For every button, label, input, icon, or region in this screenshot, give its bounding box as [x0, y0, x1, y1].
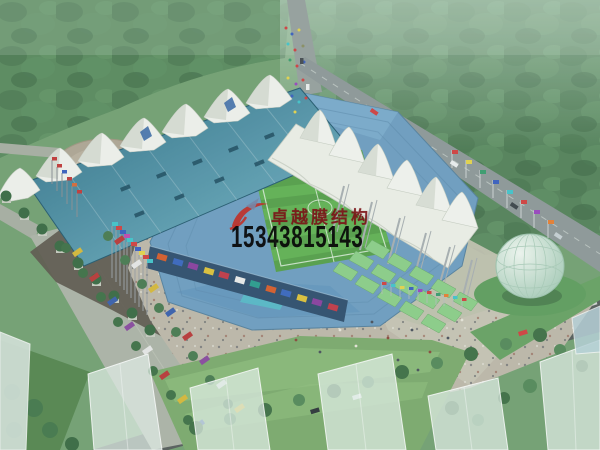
atmosphere-tint [0, 0, 600, 450]
rendering-scene [0, 0, 600, 450]
stadium-rendering-image: 卓越膜结构 15343815143 [0, 0, 600, 450]
